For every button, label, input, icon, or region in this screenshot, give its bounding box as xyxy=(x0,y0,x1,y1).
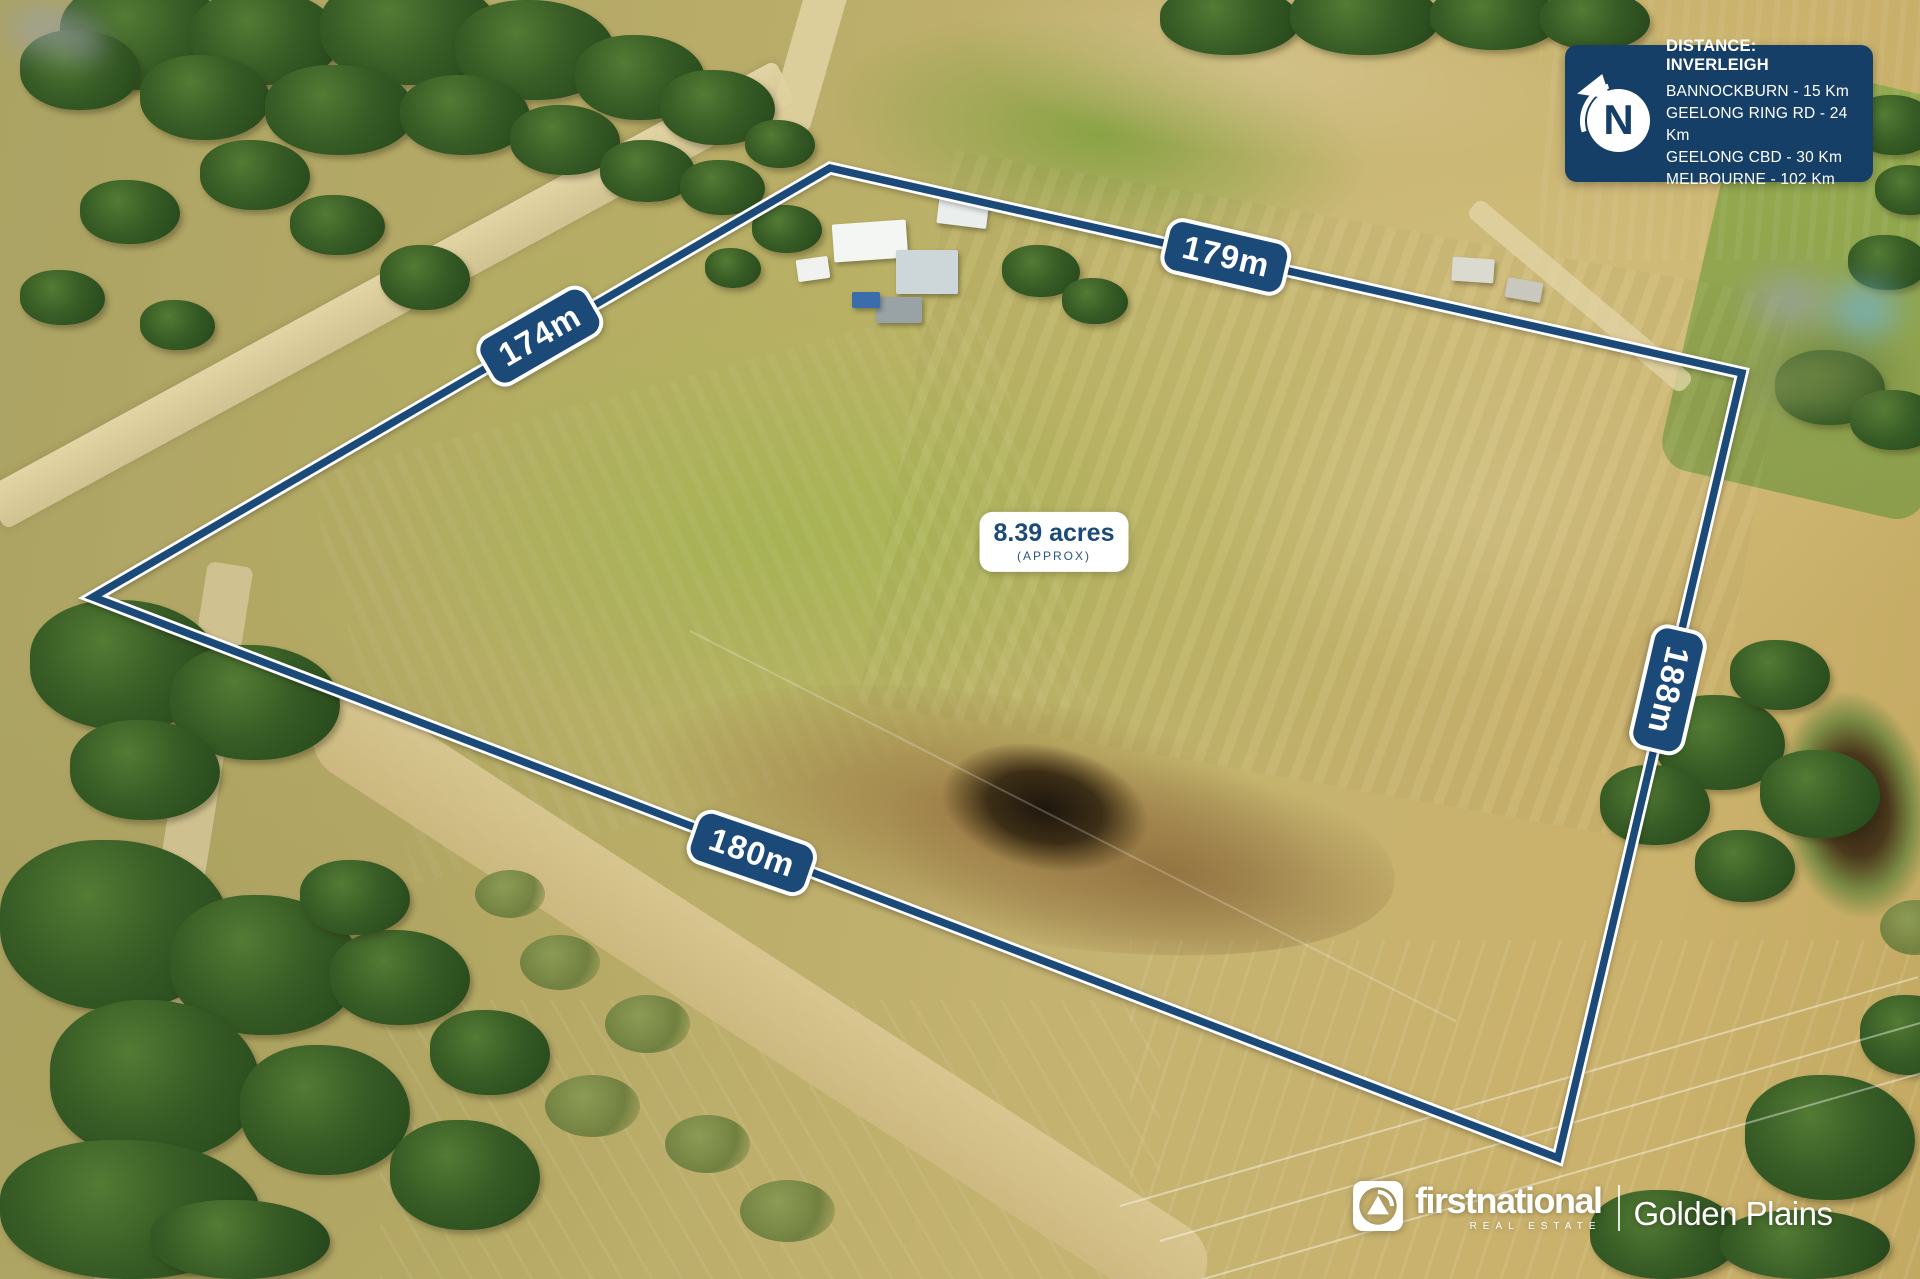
distance-panel: N DISTANCE: INVERLEIGH BANNOCKBURN - 15 … xyxy=(1565,45,1873,182)
distance-item: BANNOCKBURN - 15 Km xyxy=(1666,81,1863,103)
north-compass-icon: N xyxy=(1579,66,1653,162)
distance-title: DISTANCE: INVERLEIGH xyxy=(1666,37,1863,75)
brand-name: firstnational xyxy=(1415,1186,1602,1217)
office-name: Golden Plains xyxy=(1634,1197,1833,1232)
property-boundary xyxy=(0,0,1920,1279)
compass-letter: N xyxy=(1603,99,1633,141)
brand-tagline: REAL ESTATE xyxy=(1470,1221,1602,1232)
agency-logo: firstnational REAL ESTATE Golden Plains xyxy=(1352,1180,1832,1232)
brand-name-stack: firstnational REAL ESTATE xyxy=(1415,1186,1602,1232)
distance-item: GEELONG CBD - 30 Km xyxy=(1666,147,1863,169)
logo-divider xyxy=(1618,1185,1620,1231)
firstnational-icon xyxy=(1352,1180,1404,1232)
compass-circle: N xyxy=(1587,89,1650,152)
distance-item: MELBOURNE - 102 Km xyxy=(1666,169,1863,191)
area-label: 8.39 acres (APPROX) xyxy=(980,512,1129,572)
area-qualifier: (APPROX) xyxy=(994,549,1115,563)
area-value: 8.39 acres xyxy=(994,520,1115,546)
distance-item: GEELONG RING RD - 24 Km xyxy=(1666,103,1863,147)
distance-list: DISTANCE: INVERLEIGH BANNOCKBURN - 15 Km… xyxy=(1666,37,1863,191)
listing-photo-canvas: 174m 179m 188m 180m 8.39 acres (APPROX) … xyxy=(0,0,1920,1279)
boundary-outline-navy xyxy=(93,168,1742,1158)
